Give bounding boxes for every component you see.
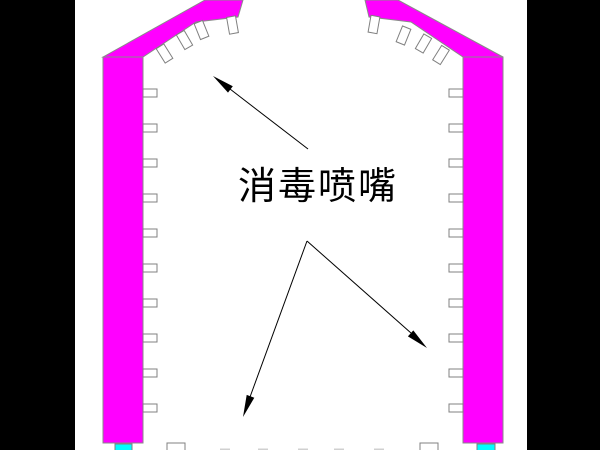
base-pad <box>115 444 132 450</box>
wall-nozzle <box>449 89 463 97</box>
leader-arrow-upper-left <box>213 76 308 149</box>
letterbox-left <box>0 0 75 450</box>
wall-nozzle <box>143 159 157 167</box>
left-roof-wall <box>103 0 243 57</box>
roof-nozzle <box>176 30 192 49</box>
left-wall <box>103 57 143 443</box>
leader-arrow-lower-right <box>307 241 427 348</box>
roof-nozzle <box>368 15 380 33</box>
wall-nozzle <box>143 124 157 132</box>
wall-nozzle <box>143 194 157 202</box>
wall-nozzle <box>143 334 157 342</box>
diagram-stage: 消毒喷嘴 <box>0 0 600 450</box>
right-wall <box>463 57 503 443</box>
wall-nozzle <box>449 264 463 272</box>
leader-arrow-lower-left <box>243 241 307 417</box>
wall-nozzle <box>449 299 463 307</box>
wall-nozzle <box>143 404 157 412</box>
wall-nozzle <box>143 264 157 272</box>
letterbox-right <box>527 0 600 450</box>
label-disinfection-nozzle: 消毒喷嘴 <box>238 166 398 206</box>
wall-nozzle <box>143 299 157 307</box>
right-roof-wall <box>365 0 503 57</box>
wall-nozzle <box>449 369 463 377</box>
roof-nozzle <box>156 44 173 63</box>
roof-nozzle <box>227 16 239 34</box>
wall-nozzle <box>143 89 157 97</box>
wall-nozzle <box>449 159 463 167</box>
wall-nozzle <box>143 369 157 377</box>
wall-nozzle <box>449 229 463 237</box>
wall-nozzle <box>449 334 463 342</box>
wall-nozzle <box>449 194 463 202</box>
wall-nozzle <box>449 404 463 412</box>
tunnel-cross-section <box>0 0 600 450</box>
wall-nozzle <box>449 124 463 132</box>
roof-nozzle <box>415 34 431 53</box>
base-pad <box>477 444 495 450</box>
floor-box <box>420 443 438 450</box>
floor-box <box>167 443 185 450</box>
roof-nozzle <box>194 20 209 39</box>
roof-nozzle <box>396 26 411 45</box>
wall-nozzle <box>143 229 157 237</box>
roof-nozzle <box>433 45 450 64</box>
